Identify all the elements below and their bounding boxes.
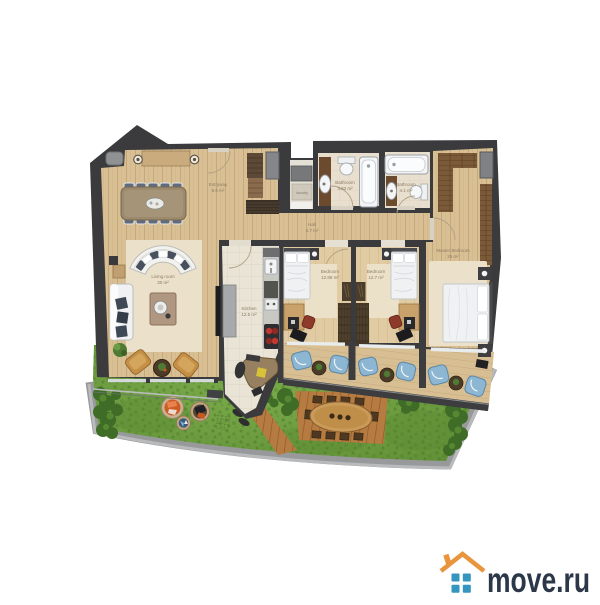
svg-text:12.89 m²: 12.89 m²	[321, 275, 339, 280]
svg-text:move.ru: move.ru	[487, 561, 590, 600]
svg-text:12.7 m²: 12.7 m²	[368, 275, 384, 280]
svg-text:Bathroom: Bathroom	[396, 182, 416, 187]
svg-text:Bedroom: Bedroom	[367, 269, 386, 274]
svg-text:4.7 m²: 4.7 m²	[306, 228, 319, 233]
svg-text:laundry: laundry	[296, 191, 308, 195]
svg-text:Entryway: Entryway	[209, 182, 228, 187]
svg-text:4.1 m²: 4.1 m²	[400, 188, 413, 193]
svg-text:Bathroom: Bathroom	[335, 180, 355, 185]
svg-text:30 m²: 30 m²	[157, 280, 169, 285]
svg-text:Living room: Living room	[151, 274, 175, 279]
svg-text:4.83 m²: 4.83 m²	[337, 186, 353, 191]
svg-text:25 m²: 25 m²	[447, 254, 459, 259]
svg-text:Kitchen: Kitchen	[241, 306, 257, 311]
svg-text:12.5 m²: 12.5 m²	[241, 312, 257, 317]
svg-text:8.6 m²: 8.6 m²	[212, 188, 225, 193]
svg-text:Master Bedroom: Master Bedroom	[436, 248, 470, 253]
svg-text:Hall: Hall	[308, 222, 316, 227]
svg-text:Bedroom: Bedroom	[321, 269, 340, 274]
